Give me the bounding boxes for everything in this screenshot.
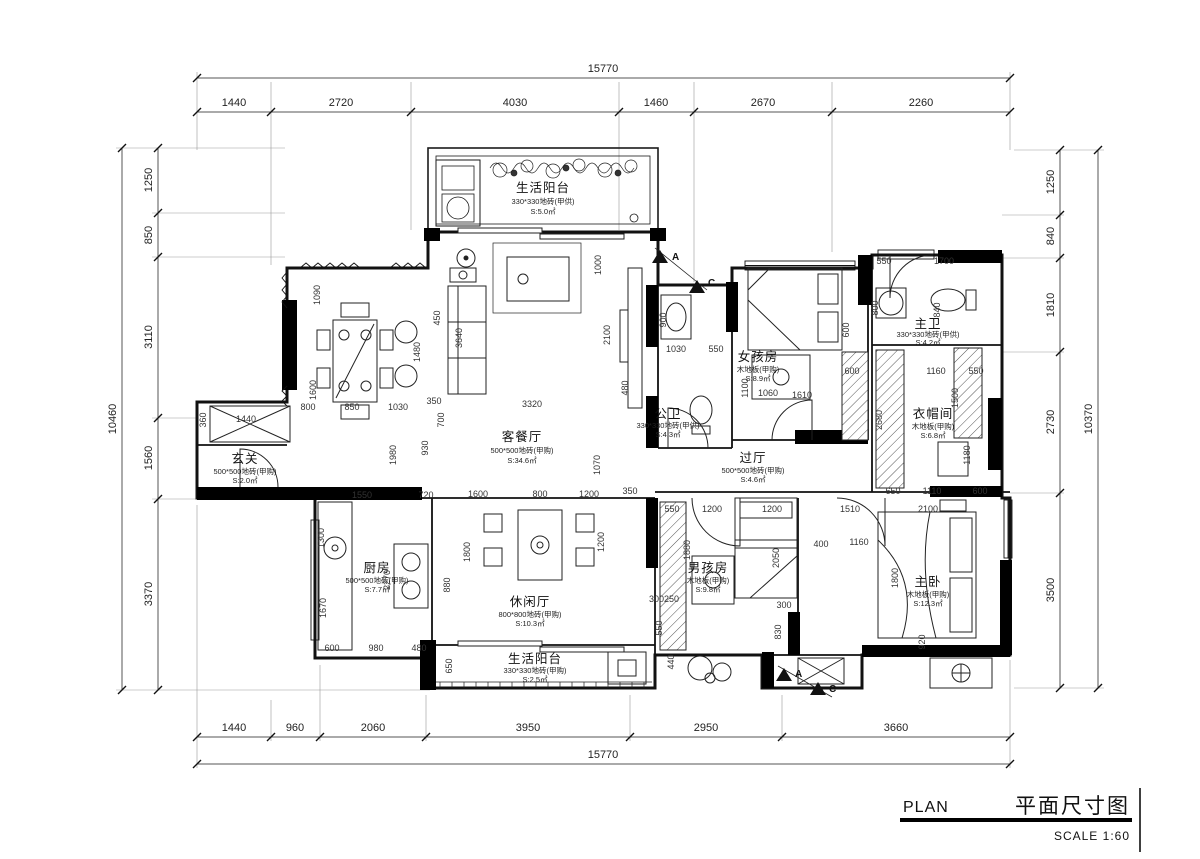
dim-label: 550 [876, 256, 891, 266]
dim-label: 1030 [666, 344, 686, 354]
dim-label: 1600 [468, 489, 488, 499]
dim-label: 1550 [352, 490, 372, 500]
dim-label: 2670 [751, 97, 775, 109]
dim-label: 600 [844, 366, 859, 376]
room-spec: 500*500地砖(甲购) [491, 445, 554, 455]
dim-label: 3950 [516, 722, 540, 734]
room-name-hall: 过厅 [739, 451, 766, 465]
dim-label: 1110 [923, 486, 942, 496]
room-area: S:5.0㎡ [530, 207, 556, 216]
dim-label: 1100 [740, 378, 750, 397]
dim-label: 2730 [1045, 410, 1057, 434]
room-name-balcony-top: 生活阳台 [516, 180, 570, 195]
dim-label: 4030 [503, 97, 527, 109]
room-name-boys: 男孩房 [688, 560, 729, 575]
room-spec: 木地板(甲购) [737, 364, 780, 374]
dim-label: 3660 [884, 722, 908, 734]
dim-label: 2100 [602, 325, 612, 345]
room-name-girls: 女孩房 [738, 349, 779, 364]
dim-label: 600 [972, 486, 987, 496]
dim-label: 300 [776, 600, 791, 610]
furniture-leisure [484, 510, 594, 580]
dim-label: 650 [444, 658, 454, 673]
dim-label: 2720 [329, 97, 353, 109]
room-area: S:4.2㎡ [915, 338, 941, 347]
room-spec: 330*330地砖(甲供) [512, 196, 575, 206]
room-name-bath-master: 主卫 [914, 317, 941, 331]
dim-label: 1200 [762, 504, 782, 514]
dim-label: 1500 [950, 388, 960, 408]
dim-label: 550 [708, 344, 723, 354]
dim-label: 350 [622, 486, 637, 496]
room-area: S:9.8㎡ [695, 585, 721, 594]
room-area: S:2.0㎡ [232, 476, 258, 485]
dim-label: 1030 [388, 402, 408, 412]
room-name-balcony-bottom: 生活阳台 [508, 651, 562, 666]
dim-label: 1600 [308, 380, 318, 400]
balcony-plants [490, 159, 637, 178]
dim-label: 1880 [682, 540, 692, 560]
dim-label: 3640 [454, 328, 464, 348]
dim-label: 1980 [388, 445, 398, 465]
dim-label: 800 [532, 489, 547, 499]
dim-label: 1090 [312, 285, 322, 305]
section-label-c-bottom: C [829, 684, 836, 695]
dim-label: 1440 [222, 722, 246, 734]
room-spec: 800*800地砖(甲购) [499, 609, 562, 619]
dim-label: 600 [324, 643, 339, 653]
dim-label: 800 [870, 300, 880, 315]
dim-label: 1070 [592, 455, 602, 475]
dim-label: 850 [143, 226, 155, 244]
dim-label: 700 [436, 412, 446, 427]
dim-label: 1440 [236, 414, 256, 424]
dim-label: 1480 [412, 342, 422, 362]
dim-label: 2100 [918, 504, 938, 514]
title-block: PLAN 平面尺寸图 SCALE 1:60 [900, 788, 1140, 852]
section-label-a-bottom: A [795, 669, 802, 680]
furniture-entry [210, 406, 290, 442]
dim-label: 300250 [649, 594, 679, 604]
dim-label: 1610 [792, 390, 812, 400]
dim-label: 1560 [143, 446, 155, 470]
dim-label: 1180 [962, 445, 972, 464]
dim-label: 880 [442, 577, 452, 592]
dim-label: 830 [773, 624, 783, 639]
dim-label: 440 [666, 654, 676, 669]
room-spec: 木地板(甲购) [907, 589, 950, 599]
dim-label: 900 [658, 312, 668, 327]
dim-label: 850 [344, 402, 359, 412]
room-spec: 500*500地砖(甲购) [214, 466, 277, 476]
room-area: S:10.3㎡ [515, 619, 545, 628]
dim-label: 1800 [462, 542, 472, 562]
room-name-living: 客餐厅 [502, 429, 543, 444]
dim-label: 3500 [1045, 578, 1057, 602]
dim-total-bottom: 15770 [588, 749, 619, 761]
dim-label: 1000 [593, 255, 603, 275]
dim-label: 360 [198, 412, 208, 427]
room-spec: 木地板(甲购) [912, 421, 955, 431]
dim-label: 400 [813, 539, 828, 549]
room-spec: 500*500地砖(甲购) [346, 575, 409, 585]
dim-label: 350 [426, 396, 441, 406]
dim-label: 2680 [874, 410, 884, 430]
floor-plan-canvas: 15770 1440 2720 4030 1460 2670 2260 1440… [0, 0, 1200, 859]
dim-label: 920 [917, 634, 927, 649]
dim-total-left: 10460 [107, 404, 119, 435]
title-plan-en: PLAN [903, 799, 949, 816]
room-area: S:12.3㎡ [913, 599, 943, 608]
dim-label: 1200 [596, 532, 606, 552]
dim-label: 450 [432, 310, 442, 325]
dim-label: 1200 [579, 489, 599, 499]
dim-label: 480 [620, 380, 630, 395]
room-area: S:34.6㎡ [507, 456, 537, 465]
room-name-closet: 衣帽间 [913, 406, 954, 421]
room-name-master: 主卧 [914, 575, 941, 589]
dim-label: 2050 [771, 548, 781, 568]
room-spec: 500*500地砖(甲购) [722, 465, 785, 475]
room-area: S:4.3㎡ [655, 430, 681, 439]
dim-label: 3370 [143, 582, 155, 606]
dim-label: 2270 [382, 570, 392, 590]
room-spec: 330*330地砖(甲供) [637, 420, 700, 430]
dim-label: 930 [420, 440, 430, 455]
dim-label: 2950 [694, 722, 718, 734]
dim-label: 1510 [840, 504, 860, 514]
dim-label: 840 [1045, 227, 1057, 245]
dim-total-top: 15770 [588, 63, 619, 75]
dim-label: 550 [654, 620, 664, 635]
title-plan-cn: 平面尺寸图 [1015, 795, 1130, 818]
dim-label: 2060 [361, 722, 385, 734]
dim-label: 1060 [758, 388, 778, 398]
room-name-entry: 玄关 [231, 451, 258, 466]
dim-label: 1300 [316, 528, 326, 548]
section-label-a-top: A [672, 252, 679, 263]
room-name-leisure: 休闲厅 [510, 595, 551, 609]
dim-label: 600 [841, 322, 851, 337]
room-spec: 330*330地砖(甲购) [504, 665, 567, 675]
dim-label: 1160 [849, 537, 868, 547]
dim-label: 480 [411, 643, 426, 653]
dim-label: 3320 [522, 399, 542, 409]
dim-label: 1440 [222, 97, 246, 109]
dim-label: 550 [968, 366, 983, 376]
dim-label: 840 [932, 302, 942, 317]
room-spec: 木地板(甲购) [687, 575, 730, 585]
dim-label: 3110 [143, 325, 155, 349]
furniture-bath-master [876, 288, 976, 318]
dim-label: 2260 [909, 97, 933, 109]
dim-label: 720 [418, 490, 433, 500]
dim-label: 1800 [890, 568, 900, 588]
dim-label: 1670 [318, 598, 328, 618]
room-area: S:6.8㎡ [920, 431, 946, 440]
dim-label: 1200 [702, 504, 722, 514]
room-area: S:2.5㎡ [522, 675, 548, 684]
dim-label: 1160 [926, 366, 945, 376]
dim-label: 1810 [1045, 293, 1057, 317]
title-scale: SCALE 1:60 [1054, 829, 1130, 843]
section-label-c-top: C [708, 278, 715, 289]
dim-label: 980 [368, 643, 383, 653]
room-area: S:4.6㎡ [740, 475, 766, 484]
dim-label: 650 [885, 486, 900, 496]
dim-label: 960 [286, 722, 304, 734]
dim-label: 550 [664, 504, 679, 514]
dim-label: 800 [300, 402, 315, 412]
furniture-living [448, 243, 642, 408]
room-name-bath-public: 公卫 [654, 407, 681, 421]
dim-total-right: 10370 [1083, 404, 1095, 435]
dim-label: 1250 [143, 168, 155, 192]
dim-label: 1700 [934, 256, 954, 266]
dim-label: 1460 [644, 97, 668, 109]
dim-label: 1250 [1045, 170, 1057, 194]
